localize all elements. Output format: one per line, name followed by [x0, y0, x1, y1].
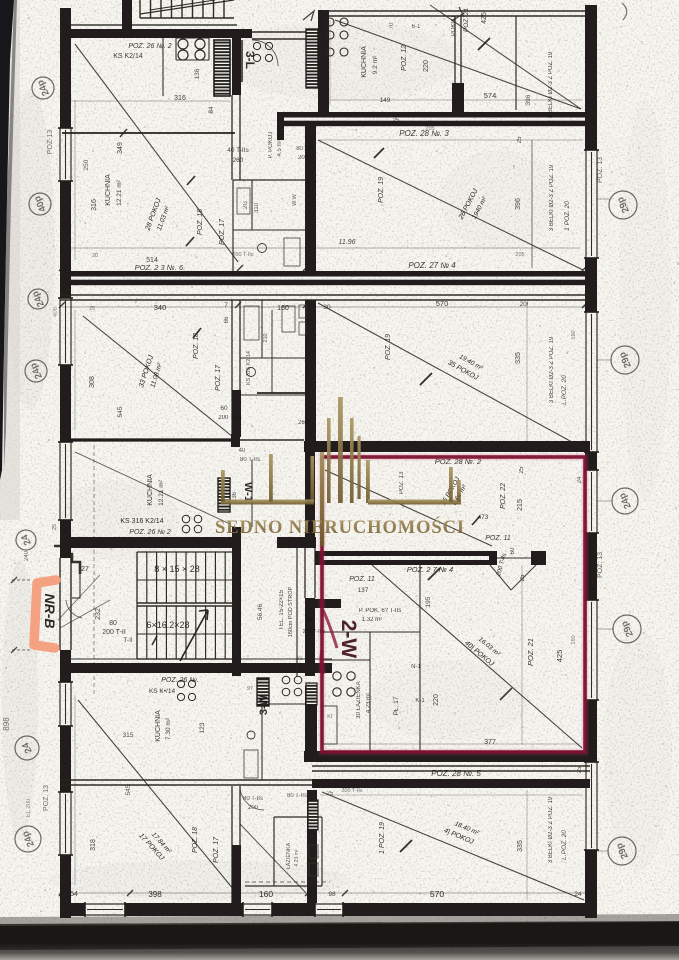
svg-text:POZ. 28 №. 3: POZ. 28 №. 3	[399, 129, 449, 138]
svg-text:POZ. 19: POZ. 19	[378, 177, 385, 203]
svg-text:KŁ: KŁ	[297, 656, 304, 662]
svg-text:POZ. 21: POZ. 21	[463, 8, 470, 33]
svg-text:205: 205	[425, 126, 434, 132]
svg-text:4.23 m²: 4.23 m²	[294, 849, 300, 866]
svg-text:377: 377	[484, 739, 496, 746]
svg-text:66: 66	[224, 316, 230, 323]
svg-text:30 ŁAZIENKA: 30 ŁAZIENKA	[356, 681, 362, 718]
svg-text:POZ. 17: POZ. 17	[213, 836, 220, 863]
svg-text:9.2 m²: 9.2 m²	[372, 55, 379, 74]
svg-text:396: 396	[525, 94, 532, 105]
svg-text:195: 195	[425, 596, 432, 607]
svg-text:N-1: N-1	[411, 664, 421, 670]
svg-text:160: 160	[571, 635, 577, 644]
svg-text:898: 898	[2, 717, 11, 731]
svg-text:KS 316 K2/14: KS 316 K2/14	[246, 351, 252, 385]
svg-text:NR-B: NR-B	[42, 594, 58, 629]
svg-text:1 POZ. 20: 1 POZ. 20	[564, 201, 571, 231]
svg-text:2-W: 2-W	[337, 620, 360, 659]
svg-text:260 T-IIs: 260 T-IIs	[232, 252, 254, 258]
svg-text:205: 205	[515, 252, 524, 258]
svg-text:149: 149	[380, 97, 391, 104]
svg-text:20: 20	[92, 253, 98, 259]
svg-text:574: 574	[484, 91, 497, 100]
svg-text:2G: 2G	[243, 201, 249, 209]
svg-text:40 T-IIs: 40 T-IIs	[227, 147, 249, 154]
svg-text:25: 25	[89, 306, 95, 312]
svg-text:3 BELKI Ø2-3 Z POZ. 19: 3 BELKI Ø2-3 Z POZ. 19	[549, 164, 555, 231]
svg-text:25: 25	[52, 524, 58, 530]
svg-text:220: 220	[423, 60, 430, 72]
svg-text:3 BELKI Ø2-3 Z POZ. 19: 3 BELKI Ø2-3 Z POZ. 19	[549, 336, 555, 403]
svg-text:TEL. 15-22×15: TEL. 15-22×15	[279, 589, 285, 630]
svg-text:4.5 m²: 4.5 m²	[277, 139, 283, 156]
svg-text:200 T-IIs: 200 T-IIs	[218, 415, 241, 421]
svg-text:97: 97	[247, 686, 253, 692]
svg-text:PŁ. 17: PŁ. 17	[393, 696, 400, 715]
svg-text:398: 398	[148, 890, 162, 899]
svg-text:90: 90	[306, 617, 313, 623]
svg-text:84: 84	[208, 106, 215, 114]
svg-text:POZ. 13: POZ. 13	[43, 785, 50, 811]
svg-text:25: 25	[393, 118, 400, 124]
svg-text:60: 60	[220, 405, 228, 412]
svg-text:7: 7	[224, 302, 228, 309]
svg-text:308: 308	[89, 376, 96, 388]
svg-text:1.32 m²: 1.32 m²	[362, 617, 382, 623]
svg-text:POZ. 11: POZ. 11	[349, 576, 375, 583]
svg-text:4.23 m²: 4.23 m²	[366, 693, 372, 713]
svg-text:KS 316 K2/14: KS 316 K2/14	[120, 518, 163, 525]
svg-text:7.30 m²: 7.30 m²	[165, 717, 172, 740]
svg-text:40: 40	[239, 448, 246, 454]
svg-text:P. POKOJ: P. POKOJ	[268, 132, 274, 159]
svg-text:80 T-IIs: 80 T-IIs	[240, 457, 260, 463]
svg-text:POZ. 19: POZ. 19	[385, 334, 392, 360]
svg-text:3 BELKI Ø2-3 Z POZ. 19: 3 BELKI Ø2-3 Z POZ. 19	[548, 51, 554, 118]
svg-text:K-1: K-1	[415, 698, 425, 704]
svg-text:POZ. 2 7 № 4: POZ. 2 7 № 4	[407, 565, 453, 574]
svg-text:1 POZ. 19: 1 POZ. 19	[379, 822, 386, 854]
svg-text:250: 250	[83, 159, 90, 170]
svg-text:11.96: 11.96	[339, 239, 356, 246]
svg-text:232: 232	[95, 608, 102, 620]
svg-text:12.21 m²: 12.21 m²	[116, 179, 123, 205]
svg-text:54: 54	[70, 891, 78, 898]
svg-text:SEDNO NIERUCHOMOŚCI: SEDNO NIERUCHOMOŚCI	[215, 516, 465, 538]
svg-text:POZ-13: POZ-13	[47, 130, 54, 155]
svg-text:KS K•/14: KS K•/14	[149, 688, 176, 695]
svg-text:6×16.2×28: 6×16.2×28	[146, 620, 189, 630]
svg-text:316: 316	[174, 95, 186, 102]
svg-text:25: 25	[519, 466, 525, 473]
svg-text:POZ. 22: POZ. 22	[500, 483, 507, 509]
svg-text:220: 220	[433, 694, 440, 706]
svg-text:349: 349	[117, 142, 124, 154]
svg-text:80 T-IIs: 80 T-IIs	[287, 793, 307, 799]
svg-text:POZ. 13: POZ. 13	[597, 552, 604, 578]
svg-text:318: 318	[90, 839, 97, 851]
svg-text:3-L: 3-L	[243, 51, 257, 69]
svg-text:25: 25	[577, 766, 583, 773]
svg-text:160: 160	[571, 330, 577, 339]
svg-text:POZ. 27 № 4: POZ. 27 № 4	[408, 261, 456, 270]
svg-text:136: 136	[194, 68, 201, 79]
svg-text:L.POZ. 20: L.POZ. 20	[561, 830, 568, 860]
svg-text:8 × 15 × 28: 8 × 15 × 28	[154, 564, 200, 574]
svg-text:200 T-IIs: 200 T-IIs	[341, 788, 363, 794]
svg-text:545: 545	[125, 784, 132, 795]
svg-text:425: 425	[481, 12, 488, 24]
svg-text:T-P: T-P	[303, 144, 312, 150]
svg-text:3-W: 3-W	[258, 694, 270, 715]
svg-text:POZ. 17: POZ. 17	[215, 364, 222, 391]
svg-text:3 BELKI Ø2-3 Z POZ. 19: 3 BELKI Ø2-3 Z POZ. 19	[548, 796, 554, 863]
svg-text:POZ. 21: POZ. 21	[526, 638, 535, 666]
svg-text:215: 215	[517, 499, 524, 511]
svg-text:24: 24	[574, 891, 582, 898]
svg-text:335: 335	[515, 352, 522, 364]
svg-text:POZ. 18: POZ. 18	[192, 827, 199, 853]
svg-text:25: 25	[517, 136, 523, 143]
svg-text:80 T-IIs: 80 T-IIs	[243, 796, 263, 802]
svg-text:POZ. 11: POZ. 11	[485, 535, 511, 542]
svg-text:P. POK. 6? T-IIs: P. POK. 6? T-IIs	[359, 608, 401, 614]
svg-text:EL 200: EL 200	[26, 798, 32, 817]
svg-text:KUCHNIA: KUCHNIA	[105, 174, 112, 206]
svg-text:316: 316	[91, 199, 98, 211]
svg-text:70: 70	[389, 22, 395, 29]
svg-text:6-1: 6-1	[412, 24, 421, 30]
svg-text:POZ. 26 № 2: POZ. 26 № 2	[129, 529, 171, 536]
svg-text:98: 98	[328, 891, 336, 898]
svg-text:POZ. 28 №. 5: POZ. 28 №. 5	[431, 769, 481, 778]
svg-text:KUCHNIA: KUCHNIA	[361, 46, 368, 78]
svg-text:240: 240	[24, 550, 30, 561]
svg-text:570: 570	[430, 889, 444, 899]
svg-text:200 T-II: 200 T-II	[102, 629, 126, 636]
svg-text:210: 210	[263, 333, 269, 342]
svg-text:80: 80	[109, 620, 117, 627]
svg-text:56.46: 56.46	[257, 603, 264, 620]
svg-text:137: 137	[358, 587, 369, 594]
svg-text:T-II: T-II	[123, 637, 133, 644]
svg-text:123: 123	[199, 722, 206, 733]
svg-text:425: 425	[555, 650, 564, 663]
svg-text:335: 335	[517, 840, 524, 852]
svg-text:200: 200	[298, 155, 309, 161]
svg-text:POKOJ: POKOJ	[451, 16, 457, 36]
svg-text:408: 408	[306, 179, 312, 190]
svg-text:W.W: W.W	[292, 193, 298, 205]
svg-text:Kŀ: Kŀ	[327, 714, 333, 720]
svg-text:POZ. 13: POZ. 13	[399, 471, 405, 494]
svg-text:408: 408	[53, 306, 59, 317]
svg-text:20!: 20!	[519, 301, 528, 308]
svg-text:ŁAZIENKA: ŁAZIENKA	[286, 842, 292, 869]
svg-text:POZ. 17: POZ. 17	[219, 218, 226, 245]
svg-text:L.POZ. 20: L.POZ. 20	[561, 375, 568, 405]
svg-text:310: 310	[254, 202, 260, 213]
svg-text:POZ. 12: POZ. 12	[401, 45, 408, 71]
svg-text:315: 315	[123, 732, 134, 739]
svg-text:340: 340	[154, 303, 167, 312]
svg-text:POZ. 13: POZ. 13	[597, 157, 604, 183]
svg-text:260: 260	[298, 420, 309, 426]
svg-text:160: 160	[259, 889, 273, 899]
svg-text:60: 60	[510, 547, 516, 554]
svg-text:545: 545	[117, 406, 124, 417]
svg-text:KUCHNIA: KUCHNIA	[147, 474, 154, 506]
svg-text:POZ. 26 №. 2: POZ. 26 №. 2	[128, 43, 171, 50]
svg-text:KS K2/14: KS K2/14	[113, 53, 143, 60]
svg-text:260: 260	[233, 157, 244, 164]
svg-text:POZ. 2 3 №. 6.: POZ. 2 3 №. 6.	[135, 263, 186, 272]
svg-text:POZ. 18: POZ. 18	[197, 209, 204, 235]
svg-text:570: 570	[436, 299, 449, 308]
svg-text:25: 25	[327, 791, 334, 797]
svg-text:27: 27	[81, 566, 89, 573]
svg-text:396: 396	[515, 198, 522, 210]
svg-text:KUCHNIA: KUCHNIA	[155, 710, 162, 742]
svg-text:160cm POD STROP: 160cm POD STROP	[288, 586, 294, 637]
